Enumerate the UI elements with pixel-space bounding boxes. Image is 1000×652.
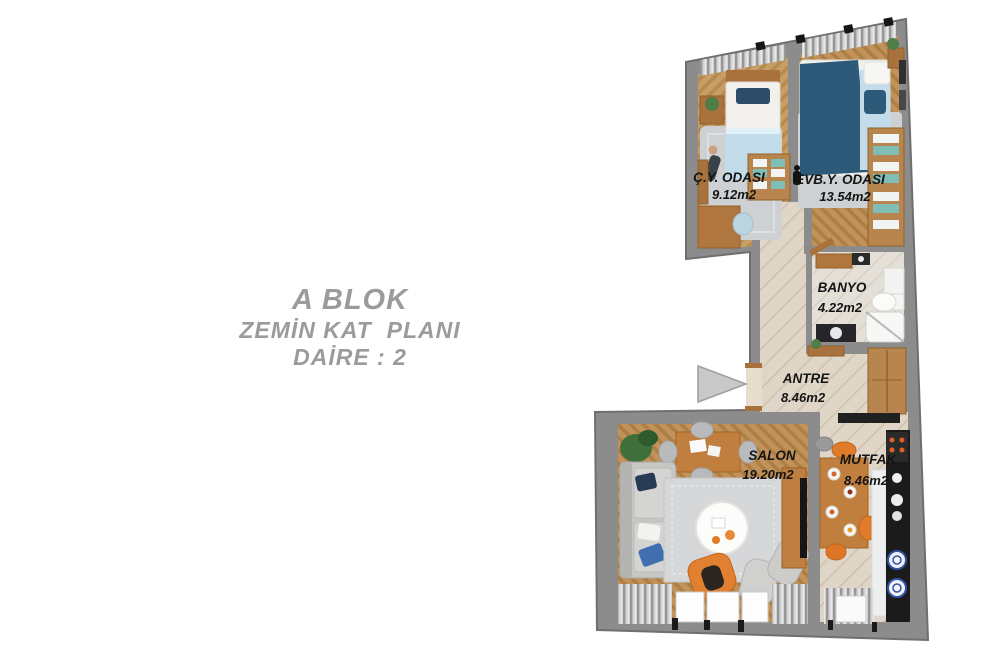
cy-odasi-area: 9.12m2	[712, 187, 757, 202]
kitchen-upper-cabinet	[838, 413, 900, 423]
banyo-toilet	[872, 293, 896, 311]
antre-area: 8.46m2	[781, 390, 826, 405]
window-frame-mark-2	[704, 620, 710, 630]
entrance-doorway	[746, 368, 762, 406]
banyo-shelf	[884, 268, 904, 294]
kitchen-counter-marble	[872, 470, 886, 616]
salon-label: SALON	[748, 448, 796, 463]
window-frame-mark-3	[738, 620, 744, 632]
evb-wall-frame-2	[899, 90, 906, 110]
banyo-counter	[816, 254, 852, 268]
kitchen-chair-gray	[815, 437, 833, 451]
cy-person-head	[709, 146, 718, 155]
banyo-sink	[830, 327, 842, 339]
salon-curtain-right	[772, 584, 808, 624]
antre-plant	[811, 339, 821, 349]
kitchen-deco-plate	[892, 473, 902, 483]
evb-wall-frame-1	[899, 60, 906, 84]
floor-plan-page: A BLOK ZEMİN KAT PLANI DAİRE : 2	[0, 0, 1000, 652]
evby-odasi-label: EVB.Y. ODASI	[795, 172, 885, 187]
evb-pillow-blue	[864, 90, 886, 114]
cy-odasi-label: Ç.Y. ODASI	[693, 170, 765, 185]
floor-plan-drawing: Ç.Y. ODASI 9.12m2 EVB.Y. ODASI 13.54m2 B…	[0, 0, 1000, 652]
entrance-door-frame-top	[745, 363, 762, 368]
kitchen-chair-orange-bottom	[826, 544, 846, 560]
salon-plant-leaf	[638, 430, 658, 446]
evb-pillow-white	[864, 62, 890, 84]
kitchen-window-frame-mark-2	[872, 622, 877, 632]
banyo-area: 4.22m2	[817, 300, 863, 315]
entrance-door-frame-bottom	[745, 406, 762, 411]
salon-tv	[800, 478, 807, 558]
evb-bed-duvet	[800, 60, 868, 176]
cy-desk-chair	[733, 213, 753, 235]
salon-dining-chair-left	[659, 441, 677, 463]
entrance-arrow-icon	[698, 366, 746, 402]
salon-radiator-2	[707, 592, 739, 622]
salon-area: 19.20m2	[742, 467, 794, 482]
kitchen-sink-bowl-2	[892, 511, 902, 521]
evb-person-head	[794, 165, 800, 171]
coffee-table-deco-1	[712, 536, 720, 544]
window-frame-mark-1	[672, 618, 678, 630]
coffee-table-book	[712, 518, 725, 528]
mutfak-area: 8.46m2	[844, 473, 889, 488]
antre-cabinet	[868, 348, 906, 414]
cy-bed-headboard	[726, 70, 780, 82]
cy-plant	[705, 97, 719, 111]
evby-odasi-area: 13.54m2	[819, 189, 871, 204]
evb-plant	[887, 38, 899, 50]
coffee-table-deco-2	[725, 530, 735, 540]
evb-wardrobe	[868, 128, 904, 246]
kitchen-radiator	[836, 596, 866, 622]
salon-radiator-3	[742, 592, 768, 622]
salon-table-paper-1	[689, 439, 707, 453]
antre-label: ANTRE	[782, 371, 830, 386]
kitchen-sink-bowl-1	[891, 494, 903, 506]
mutfak-label: MUTFAK	[840, 452, 897, 467]
salon-curtain-left	[618, 584, 672, 624]
banyo-washer-door	[858, 256, 864, 262]
cy-bed-pillow	[736, 88, 770, 104]
salon-dining-chair-top	[691, 422, 713, 438]
cy-bed-blanket-fold	[726, 128, 780, 134]
banyo-label: BANYO	[818, 280, 867, 295]
salon-table-paper-2	[707, 445, 721, 457]
kitchen-window-frame-mark-1	[828, 620, 833, 630]
salon-radiator-1	[676, 592, 704, 622]
sofa-pillow-white	[637, 523, 661, 542]
cy-odasi-furniture	[698, 70, 790, 248]
